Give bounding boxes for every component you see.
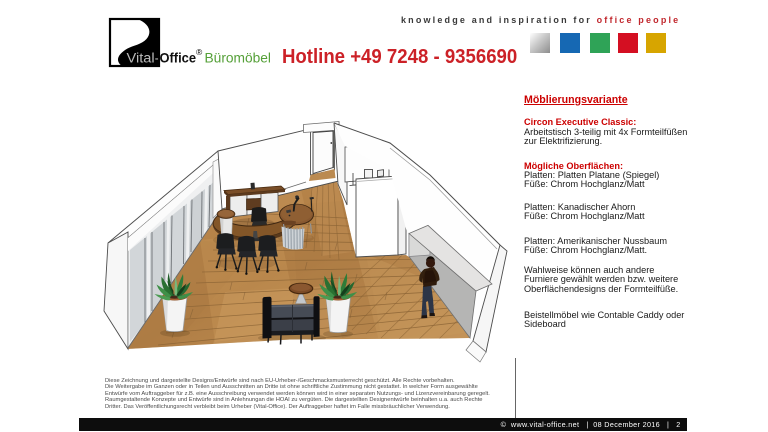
svg-text:Office: Office <box>160 51 197 67</box>
svg-text:Büromöbel: Büromöbel <box>205 51 272 67</box>
svg-text:®: ® <box>196 47 203 57</box>
svg-text:Vital-: Vital- <box>127 51 160 67</box>
